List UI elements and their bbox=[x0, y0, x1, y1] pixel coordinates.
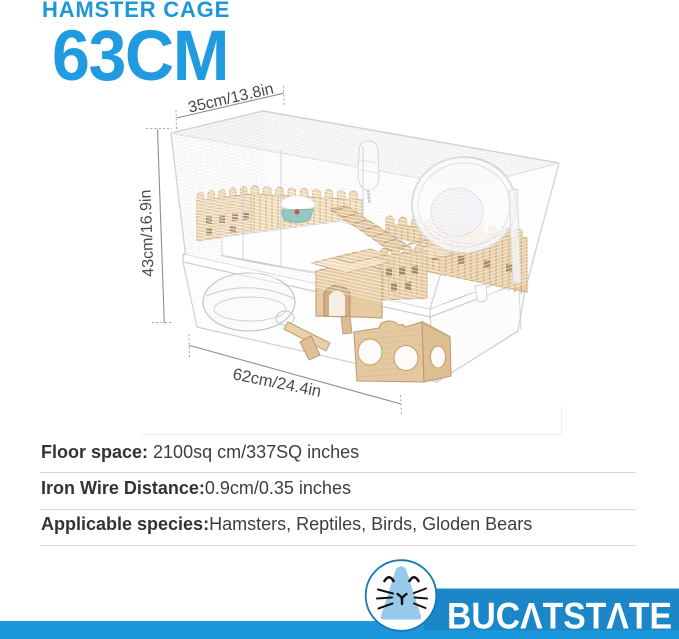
svg-text:BUCΛTSTΛTE: BUCΛTSTΛTE bbox=[447, 596, 672, 637]
